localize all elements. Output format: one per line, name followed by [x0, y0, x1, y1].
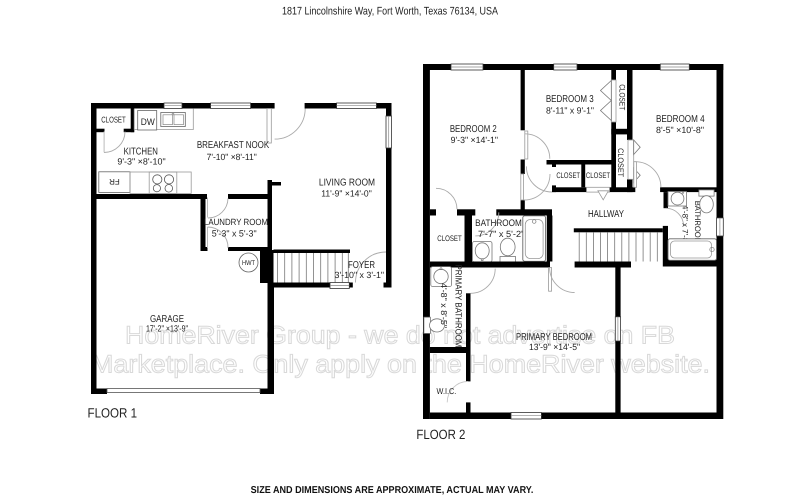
svg-text:CLOSET: CLOSET: [101, 114, 126, 124]
svg-text:SIZE AND DIMENSIONS ARE APPROX: SIZE AND DIMENSIONS ARE APPROXIMATE, ACT…: [251, 485, 534, 496]
svg-text:7'-7" x 5'-2": 7'-7" x 5'-2": [478, 229, 524, 239]
svg-text:5'-3" x 5'-3": 5'-3" x 5'-3": [212, 228, 257, 238]
svg-text:13'-9" ×14'-5": 13'-9" ×14'-5": [529, 342, 580, 352]
svg-text:CLOSET: CLOSET: [437, 234, 461, 243]
svg-text:BEDROOM 2: BEDROOM 2: [450, 124, 497, 135]
svg-text:HALLWAY: HALLWAY: [588, 209, 624, 220]
svg-text:CLOSET: CLOSET: [586, 171, 610, 180]
svg-text:PRIMARY BATHROOM: PRIMARY BATHROOM: [453, 265, 463, 348]
svg-text:FLOOR 2: FLOOR 2: [416, 427, 465, 442]
svg-text:11'-9" ×14'-0": 11'-9" ×14'-0": [321, 189, 372, 199]
svg-text:8'-11" x 9'-1": 8'-11" x 9'-1": [546, 106, 594, 116]
svg-text:8'-5" ×10'-8": 8'-5" ×10'-8": [656, 125, 704, 135]
svg-text:4'-8" x 8'-5": 4'-8" x 8'-5": [439, 283, 449, 328]
svg-text:HomeRiver Group - we do not ad: HomeRiver Group - we do not advertise on…: [125, 322, 675, 350]
svg-text:7'-10" ×8'-11": 7'-10" ×8'-11": [207, 152, 257, 162]
svg-text:FR: FR: [109, 177, 120, 186]
svg-text:CLOSET: CLOSET: [617, 84, 626, 110]
svg-text:CLOSET: CLOSET: [556, 171, 580, 180]
svg-text:LIVING ROOM: LIVING ROOM: [319, 177, 375, 188]
svg-text:9'-3" ×8'-10": 9'-3" ×8'-10": [117, 156, 165, 166]
svg-text:DW: DW: [141, 117, 155, 128]
svg-text:9'-3" ×14'-1": 9'-3" ×14'-1": [451, 135, 498, 145]
svg-text:CLOSET: CLOSET: [616, 148, 625, 177]
svg-text:3'-10" x 3'-1": 3'-10" x 3'-1": [335, 270, 385, 280]
svg-text:BEDROOM 3: BEDROOM 3: [546, 94, 594, 105]
svg-text:BEDROOM 4: BEDROOM 4: [656, 114, 705, 125]
svg-text:BATHROOM 2: BATHROOM 2: [475, 218, 529, 229]
svg-text:HWT: HWT: [242, 260, 256, 267]
svg-text:W.I.C.: W.I.C.: [437, 386, 457, 396]
svg-text:BREAKFAST NOOK: BREAKFAST NOOK: [197, 140, 270, 151]
svg-text:1817 Lincolnshire Way, Fort Wo: 1817 Lincolnshire Way, Fort Worth, Texas…: [282, 6, 499, 18]
svg-text:17'-2" ×13'-9": 17'-2" ×13'-9": [146, 324, 188, 334]
svg-text:FLOOR 1: FLOOR 1: [88, 406, 138, 421]
svg-text:LAUNDRY ROOM: LAUNDRY ROOM: [204, 217, 268, 227]
